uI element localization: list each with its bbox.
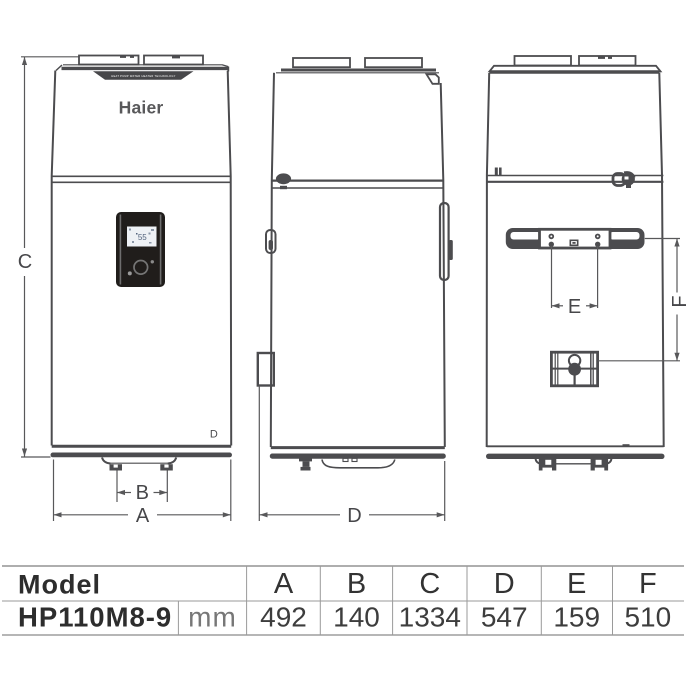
svg-text:mm: mm: [188, 602, 237, 633]
svg-text:E: E: [567, 568, 586, 600]
svg-text:HEAT PUMP WATER HEATER TECHNOL: HEAT PUMP WATER HEATER TECHNOLOGY: [111, 74, 175, 78]
svg-text:HP110M8-9: HP110M8-9: [18, 602, 172, 633]
svg-text:55: 55: [138, 233, 147, 242]
svg-text:140: 140: [333, 602, 380, 633]
svg-text:159: 159: [553, 602, 600, 633]
svg-text:Haier: Haier: [119, 98, 164, 118]
svg-text:A: A: [136, 505, 150, 527]
svg-text:547: 547: [481, 602, 528, 633]
svg-text:D: D: [347, 505, 361, 527]
svg-text:B: B: [347, 568, 366, 600]
svg-text:F: F: [639, 568, 657, 600]
svg-text:492: 492: [260, 602, 307, 633]
svg-text:B: B: [136, 482, 149, 504]
svg-text:C: C: [18, 251, 32, 273]
svg-text:F: F: [669, 295, 691, 307]
svg-text:E: E: [568, 296, 581, 318]
svg-text:D: D: [210, 429, 218, 441]
svg-text:D: D: [494, 568, 515, 600]
svg-text:A: A: [274, 568, 294, 600]
svg-text:510: 510: [624, 602, 671, 633]
svg-text:Model: Model: [18, 570, 101, 600]
svg-text:C: C: [419, 568, 440, 600]
svg-text:1334: 1334: [399, 602, 461, 633]
